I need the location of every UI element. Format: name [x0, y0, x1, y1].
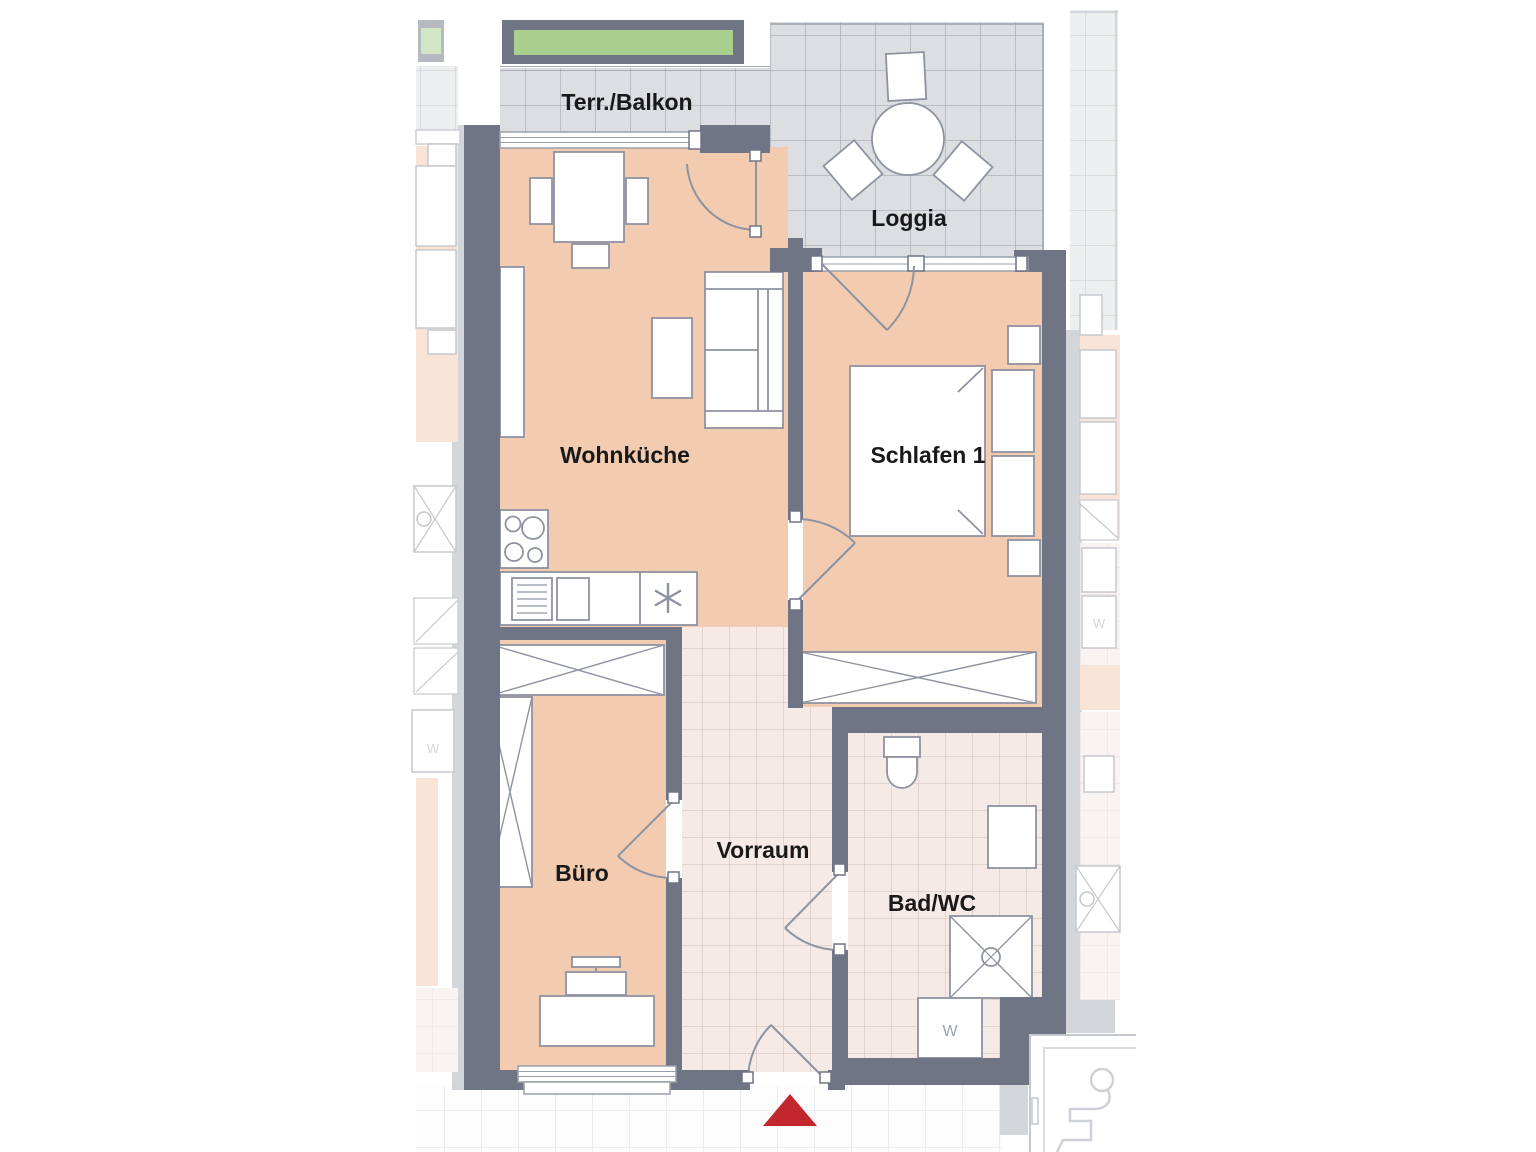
pillow-icon: [992, 456, 1034, 536]
wall-terrace-pier: [700, 125, 770, 153]
wall-left: [464, 125, 500, 1090]
living-kitchen-label: Wohnküche: [560, 442, 690, 468]
neighbour-bed-icon: [1080, 350, 1116, 418]
corridor-floor: [416, 1085, 1002, 1152]
sofa-icon: [705, 272, 783, 428]
pillow-icon: [992, 370, 1034, 452]
neighbour-bed-icon: [416, 166, 456, 246]
window-kitchen: [500, 132, 700, 148]
washbasin-icon: [988, 806, 1036, 868]
bedroom-wardrobe-icon: [800, 652, 1036, 703]
nightstand-icon: [1008, 540, 1040, 576]
neighbour-shower-icon: [414, 486, 456, 552]
shower-icon: [950, 916, 1032, 998]
bedroom-label: Schlafen 1: [870, 442, 985, 468]
office-label: Büro: [555, 860, 609, 886]
nightstand-icon: [1008, 326, 1040, 364]
floor-plan-drawing: W W: [0, 0, 1536, 1152]
wall-office-hallway: [666, 640, 682, 800]
neighbour-apartment-right: W: [1066, 10, 1120, 1033]
tall-cabinet-icon: [500, 267, 524, 437]
office-wardrobe-top-icon: [492, 645, 664, 695]
window-sill: [524, 1082, 670, 1094]
planter-box: [502, 20, 744, 64]
planter-green-icon: [514, 30, 733, 55]
hallway-label: Vorraum: [717, 837, 810, 863]
neighbour-washer-label: W: [1093, 616, 1106, 631]
round-table-icon: [872, 103, 944, 175]
neighbour-washer-label: W: [427, 741, 440, 756]
oven-icon: [557, 578, 589, 620]
terrace-label: Terr./Balkon: [561, 89, 692, 115]
washing-machine-label: W: [942, 1023, 958, 1040]
toilet-icon: [884, 737, 920, 788]
wall-kitchen-office: [464, 627, 682, 640]
bathroom-label: Bad/WC: [888, 890, 976, 916]
wall-kitchen-bedroom: [788, 238, 803, 520]
wall-right: [1042, 250, 1066, 1090]
coffee-table-icon: [652, 318, 692, 398]
window-office: [518, 1066, 676, 1082]
wall-bedroom-bathroom: [832, 707, 1042, 733]
chair-icon: [886, 52, 926, 101]
neighbour-shower-icon: [1076, 866, 1120, 932]
loggia-label: Loggia: [871, 205, 947, 231]
floor-plan-page: W W: [0, 0, 1536, 1152]
dining-table-icon: [554, 152, 624, 242]
planter-icon: [421, 28, 441, 54]
